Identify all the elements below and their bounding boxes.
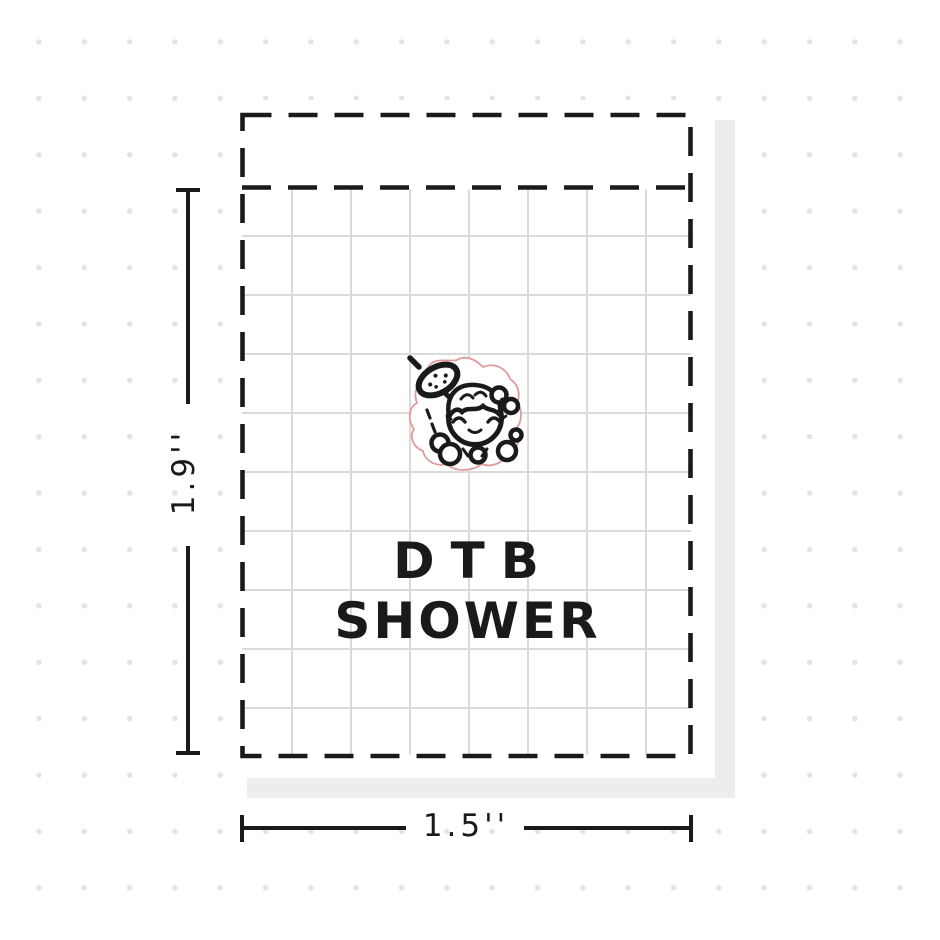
product-title: DTB SHOWER — [240, 531, 692, 651]
product-title-line2: SHOWER — [240, 591, 692, 651]
product-mockup-page: { "product": { "title_line1": "DTB", "ti… — [0, 0, 940, 940]
height-dimension-label: 1.9'' — [166, 412, 202, 532]
shower-girl-sticker — [399, 353, 532, 472]
sheet-grid — [242, 189, 691, 755]
shower-handle — [410, 358, 419, 367]
product-title-line1: DTB — [240, 531, 692, 591]
width-dimension-label: 1.5'' — [406, 808, 526, 844]
